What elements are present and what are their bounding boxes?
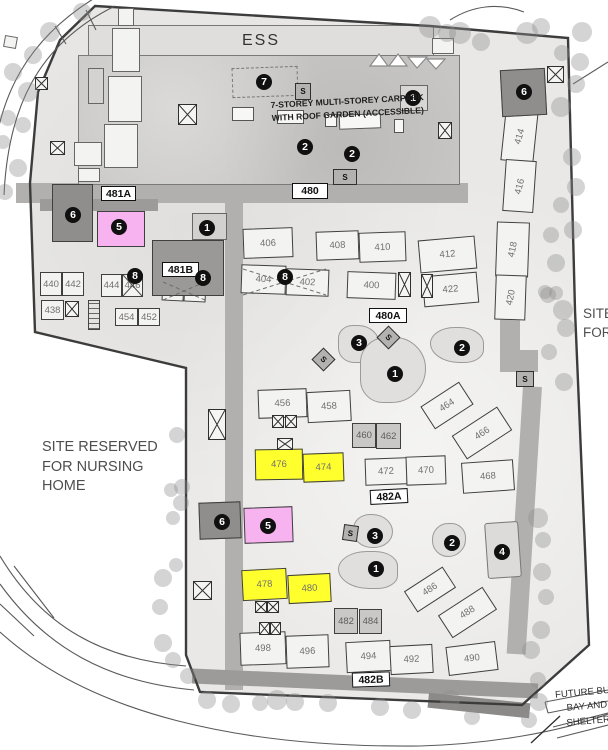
tree-icon [440,690,460,710]
tree-icon [0,135,10,149]
marker-5: 5 [260,518,276,534]
tree-icon [180,668,196,684]
existing-building [78,168,100,182]
right-edge-note: SITE FOR [583,305,608,343]
block-442[interactable]: 442 [62,272,84,296]
tree-icon [319,694,337,712]
marker-1: 1 [387,366,403,382]
tree-icon [547,254,565,272]
linkway-icon [421,274,433,298]
tree-icon [198,691,216,709]
marker-5: 5 [111,219,127,235]
right-edge-note-line2: FOR [583,324,608,343]
tree-icon [549,286,563,300]
block-472[interactable]: 472 [365,457,408,485]
existing-building [118,8,134,26]
precinct-label-482A: 482A [370,488,409,505]
linkway-icon [277,438,293,450]
precinct-label-482B: 482B [352,671,391,687]
marker-4: 4 [494,544,510,560]
existing-building [112,28,140,72]
nursing-home-note-line2: FOR NURSING [42,458,158,478]
tree-icon [0,184,13,200]
linkway-icon [438,122,452,139]
marker-1: 1 [199,220,215,236]
site-plan: ESS 7-STOREY MULTI-STOREY CARPARK WITH R… [0,0,608,750]
tree-icon [152,599,168,615]
tree-icon [73,3,91,21]
substation-box: S [333,169,357,185]
linkway-icon [547,66,564,83]
block-492[interactable]: 492 [389,644,433,675]
tree-icon [267,690,287,710]
tree-icon [554,45,570,61]
tree-icon [166,511,180,525]
marker-2: 2 [344,146,360,162]
tree-icon [530,693,548,711]
tree-icon [521,712,537,728]
tree-icon [165,652,181,668]
existing-building [108,76,142,122]
tree-icon [40,22,60,42]
marker-6: 6 [65,207,81,223]
tree-icon [403,701,421,719]
linkway-icon [50,141,65,155]
tree-icon [563,148,581,166]
block-476-highlighted[interactable]: 476 [255,449,304,481]
road-label-480: 480 [292,183,328,199]
tree-icon [538,589,554,605]
existing-building [88,68,104,104]
marker-8: 8 [277,269,293,285]
tree-icon [551,97,571,117]
block-416[interactable]: 416 [502,159,537,213]
substation-box: S [342,524,359,542]
block-480-highlighted[interactable]: 480 [287,573,331,604]
existing-building [3,35,18,49]
block-482[interactable]: 482 [334,608,358,634]
block-470[interactable]: 470 [406,455,447,485]
marker-7: 7 [256,74,272,90]
linkway-icon [255,601,267,613]
tree-icon [4,63,22,81]
tree-icon [557,319,575,337]
future-bus-note: FUTURE BUS BAY AND SHELTER [544,683,608,733]
tree-icon [543,227,559,243]
tree-icon [252,695,268,711]
tree-icon [169,558,183,572]
marker-8: 8 [195,270,211,286]
block-400[interactable]: 400 [347,271,397,300]
tree-icon [530,672,546,688]
nursing-home-note-line3: HOME [42,477,158,497]
linkway-icon [259,622,270,635]
tree-icon [572,22,592,42]
linkway-icon [178,104,197,125]
block-454[interactable]: 454 [115,308,138,326]
tree-icon [154,569,172,587]
linkway-icon [398,272,411,297]
nursing-home-note: SITE RESERVED FOR NURSING HOME [42,438,158,497]
block-494[interactable]: 494 [345,640,392,673]
tree-icon [9,159,27,177]
block-444[interactable]: 444 [101,274,122,297]
block-420[interactable]: 420 [494,274,527,320]
tree-icon [533,563,551,581]
tree-icon [528,508,548,528]
block-label: 418 [505,241,519,259]
marker-2: 2 [297,139,313,155]
tree-icon [164,483,178,497]
tree-icon [371,698,389,716]
existing-building [104,124,138,168]
existing-building [74,142,102,166]
block-452[interactable]: 452 [138,308,160,326]
marker-1: 1 [368,561,384,577]
precinct-label-481B: 481B [162,262,199,277]
linkway-icon [208,409,226,440]
tree-icon [567,178,585,196]
tree-icon [173,495,189,511]
block-412[interactable]: 412 [418,236,478,274]
tree-icon [532,621,550,639]
block-label: 416 [512,177,527,195]
block-478-highlighted[interactable]: 478 [241,568,288,601]
tree-icon [464,709,480,725]
nursing-home-note-line1: SITE RESERVED [42,438,158,458]
tree-icon [154,634,172,652]
marker-3: 3 [351,335,367,351]
precinct-label-480A: 480A [369,308,407,323]
precinct-label-481A: 481A [101,186,136,201]
tree-icon [438,24,456,42]
tree-icon [564,221,582,239]
tree-icon [541,344,557,360]
block-label: 414 [512,127,527,145]
linkway-icon [270,622,281,635]
tree-icon [18,82,38,102]
linkway-icon [65,301,79,317]
tree-icon [222,695,240,713]
block-440[interactable]: 440 [40,272,62,296]
ess-label: ESS [242,32,280,50]
tree-icon [0,110,16,126]
block-408[interactable]: 408 [316,230,360,260]
stair-hatch [88,300,100,330]
tree-icon [553,300,573,320]
block-438[interactable]: 438 [41,300,64,320]
carpark-vent [394,119,404,133]
block-468[interactable]: 468 [461,459,515,494]
tree-icon [169,427,185,443]
right-edge-note-line1: SITE [583,305,608,324]
tree-icon [286,693,304,711]
block-498[interactable]: 498 [239,631,286,666]
tree-icon [472,33,490,51]
block-label: 420 [503,289,517,307]
block-496[interactable]: 496 [285,634,329,668]
road-right-elbow-h [500,350,538,372]
tree-icon [553,197,569,213]
marker-8: 8 [127,268,143,284]
linkway-icon [267,601,279,613]
block-474-highlighted[interactable]: 474 [303,452,345,482]
tree-icon [555,373,573,391]
tree-icon [522,641,540,659]
linkway-icon [193,581,212,600]
marker-3: 3 [367,528,383,544]
tree-icon [567,75,585,93]
block-462[interactable]: 462 [376,423,401,449]
marker-2: 2 [454,340,470,356]
marker-2: 2 [444,535,460,551]
block-460[interactable]: 460 [352,423,376,448]
tree-icon [532,18,550,36]
tree-icon [15,117,31,133]
marker-6: 6 [214,514,230,530]
tree-icon [571,53,589,71]
linkway-icon [272,415,284,428]
block-418[interactable]: 418 [495,221,530,277]
block-490[interactable]: 490 [445,641,498,676]
block-410[interactable]: 410 [358,231,406,263]
block-458[interactable]: 458 [306,390,352,423]
block-484[interactable]: 484 [359,609,382,634]
block-406[interactable]: 406 [242,227,293,259]
tree-icon [535,532,551,548]
substation-box: S [516,371,534,387]
tree-icon [24,46,42,64]
linkway-icon [285,415,297,428]
marker-6: 6 [516,84,532,100]
